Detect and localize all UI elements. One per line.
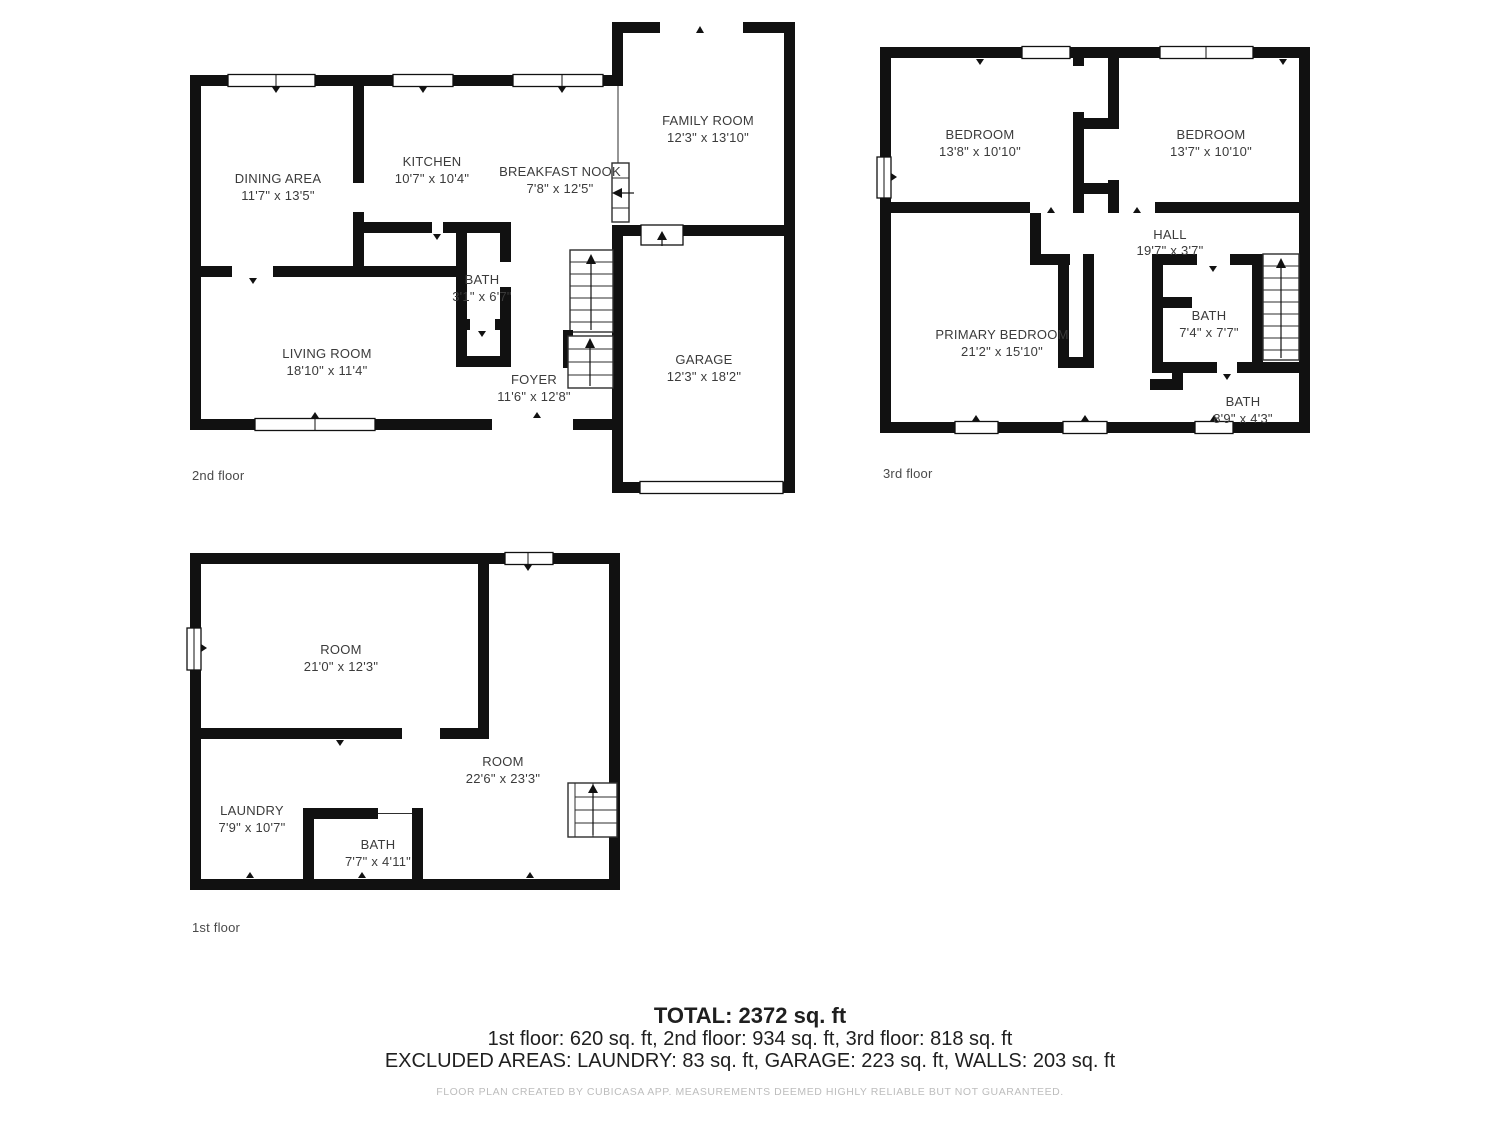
floor-caption-2nd: 2nd floor bbox=[192, 468, 244, 483]
room-label-garage: GARAGE 12'3" x 18'2" bbox=[667, 351, 742, 385]
room-dims: 21'0" x 12'3" bbox=[304, 658, 379, 675]
room-dims: 13'8" x 10'10" bbox=[939, 143, 1021, 160]
room-name: BATH bbox=[452, 271, 512, 288]
room-dims: 11'6" x 12'8" bbox=[497, 388, 571, 405]
total-area: TOTAL: 2372 sq. ft bbox=[0, 1004, 1500, 1028]
room-dims: 7'7" x 4'11" bbox=[345, 853, 411, 870]
room-label-primary-bedroom: PRIMARY BEDROOM 21'2" x 15'10" bbox=[935, 326, 1068, 360]
room-name: ROOM bbox=[304, 641, 379, 658]
room-dims: 13'7" x 10'10" bbox=[1170, 143, 1252, 160]
room-name: LIVING ROOM bbox=[282, 345, 371, 362]
steps-icon bbox=[612, 86, 634, 222]
room-label-room-lower: ROOM 22'6" x 23'3" bbox=[466, 753, 541, 787]
room-label-bedroom-left: BEDROOM 13'8" x 10'10" bbox=[939, 126, 1021, 160]
door-opening bbox=[641, 225, 683, 246]
room-name: ROOM bbox=[466, 753, 541, 770]
room-dims: 22'6" x 23'3" bbox=[466, 770, 541, 787]
excluded-areas: EXCLUDED AREAS: LAUNDRY: 83 sq. ft, GARA… bbox=[0, 1050, 1500, 1072]
window bbox=[255, 419, 375, 431]
room-name: BATH bbox=[345, 836, 411, 853]
room-dims: 8'9" x 4'3" bbox=[1213, 410, 1273, 427]
room-dims: 12'3" x 18'2" bbox=[667, 368, 742, 385]
window bbox=[877, 157, 891, 198]
room-label-foyer: FOYER 11'6" x 12'8" bbox=[497, 371, 571, 405]
room-name: FOYER bbox=[497, 371, 571, 388]
floor-plan-page: DINING AREA 11'7" x 13'5" KITCHEN 10'7" … bbox=[0, 0, 1500, 1125]
room-label-dining-area: DINING AREA 11'7" x 13'5" bbox=[235, 170, 322, 204]
room-label-kitchen: KITCHEN 10'7" x 10'4" bbox=[395, 153, 470, 187]
room-dims: 7'4" x 7'7" bbox=[1179, 324, 1239, 341]
floor-areas: 1st floor: 620 sq. ft, 2nd floor: 934 sq… bbox=[0, 1028, 1500, 1050]
garage-door bbox=[640, 482, 783, 494]
room-label-bath-1f: BATH 7'7" x 4'11" bbox=[345, 836, 411, 870]
room-label-room-upper: ROOM 21'0" x 12'3" bbox=[304, 641, 379, 675]
room-dims: 12'3" x 13'10" bbox=[662, 129, 754, 146]
floorplan-3rd-floor-walls bbox=[877, 47, 1310, 434]
room-dims: 3'1" x 6'7" bbox=[452, 288, 512, 305]
room-dims: 11'7" x 13'5" bbox=[235, 187, 322, 204]
room-name: BATH bbox=[1213, 393, 1273, 410]
floorplan-2nd-floor-walls bbox=[190, 22, 795, 494]
stairs-icon bbox=[568, 783, 617, 837]
room-dims: 21'2" x 15'10" bbox=[935, 343, 1068, 360]
room-dims: 7'9" x 10'7" bbox=[218, 819, 285, 836]
window bbox=[505, 553, 553, 565]
disclaimer: FLOOR PLAN CREATED BY CUBICASA APP. MEAS… bbox=[0, 1086, 1500, 1098]
room-label-living-room: LIVING ROOM 18'10" x 11'4" bbox=[282, 345, 371, 379]
area-summary: TOTAL: 2372 sq. ft 1st floor: 620 sq. ft… bbox=[0, 1004, 1500, 1098]
stairs-icon bbox=[563, 250, 613, 388]
room-name: BREAKFAST NOOK bbox=[499, 163, 621, 180]
room-label-hall: HALL 19'7" x 3'7" bbox=[1136, 227, 1203, 259]
room-name: DINING AREA bbox=[235, 170, 322, 187]
room-label-bath-3f-upper: BATH 7'4" x 7'7" bbox=[1179, 307, 1239, 341]
floor-caption-3rd: 3rd floor bbox=[883, 466, 933, 481]
room-dims: 7'8" x 12'5" bbox=[499, 180, 621, 197]
floorplan-graphics bbox=[0, 0, 1500, 1125]
room-label-family-room: FAMILY ROOM 12'3" x 13'10" bbox=[662, 112, 754, 146]
stairs-icon bbox=[1263, 254, 1299, 360]
window bbox=[187, 628, 201, 670]
room-name: PRIMARY BEDROOM bbox=[935, 326, 1068, 343]
room-name: KITCHEN bbox=[395, 153, 470, 170]
floor-caption-1st: 1st floor bbox=[192, 920, 240, 935]
room-label-laundry: LAUNDRY 7'9" x 10'7" bbox=[218, 802, 285, 836]
room-dims: 19'7" x 3'7" bbox=[1136, 243, 1203, 259]
room-label-bath-2f: BATH 3'1" x 6'7" bbox=[452, 271, 512, 305]
room-label-breakfast-nook: BREAKFAST NOOK 7'8" x 12'5" bbox=[499, 163, 621, 197]
room-dims: 18'10" x 11'4" bbox=[282, 362, 371, 379]
room-name: BATH bbox=[1179, 307, 1239, 324]
window bbox=[228, 75, 603, 87]
room-name: HALL bbox=[1136, 227, 1203, 243]
room-label-bath-3f-lower: BATH 8'9" x 4'3" bbox=[1213, 393, 1273, 427]
room-name: FAMILY ROOM bbox=[662, 112, 754, 129]
room-label-bedroom-right: BEDROOM 13'7" x 10'10" bbox=[1170, 126, 1252, 160]
room-name: GARAGE bbox=[667, 351, 742, 368]
room-name: BEDROOM bbox=[1170, 126, 1252, 143]
room-name: LAUNDRY bbox=[218, 802, 285, 819]
room-name: BEDROOM bbox=[939, 126, 1021, 143]
room-dims: 10'7" x 10'4" bbox=[395, 170, 470, 187]
